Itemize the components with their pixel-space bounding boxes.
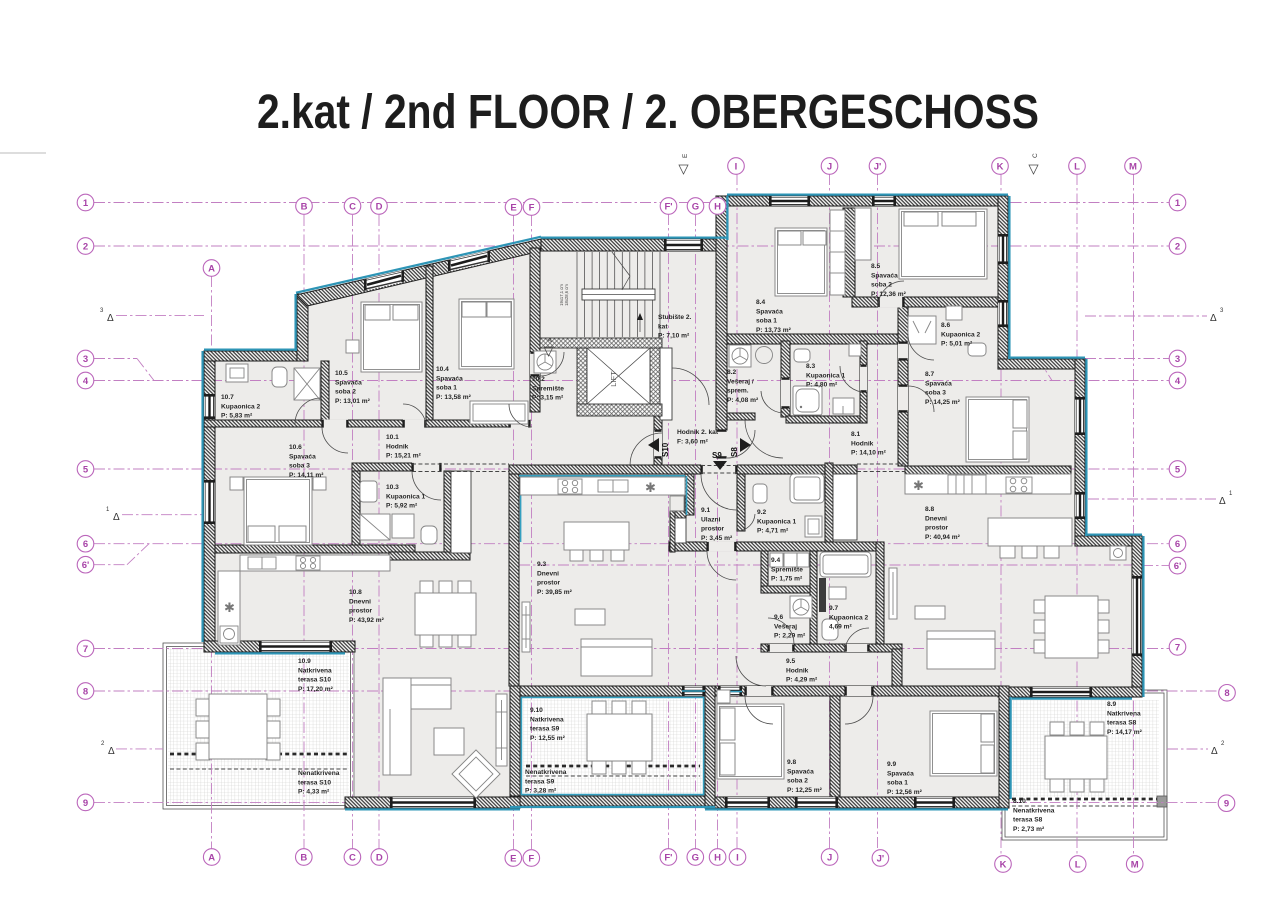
svg-text:J': J'	[877, 853, 885, 864]
svg-text:A: A	[208, 852, 215, 863]
svg-text:10.2: 10.2	[532, 376, 545, 383]
svg-text:soba 1: soba 1	[887, 780, 908, 787]
svg-text:terasa S10: terasa S10	[298, 677, 331, 684]
svg-text:Dnevni: Dnevni	[925, 515, 947, 522]
svg-text:Hodnik 2. kat: Hodnik 2. kat	[677, 429, 719, 436]
svg-text:L: L	[1074, 161, 1080, 172]
svg-text:P: 5,92 m²: P: 5,92 m²	[386, 503, 418, 510]
svg-text:soba 2: soba 2	[335, 389, 356, 396]
svg-text:8.6: 8.6	[941, 322, 950, 329]
svg-text:soba 2: soba 2	[871, 282, 892, 289]
svg-text:10.3: 10.3	[386, 484, 399, 491]
svg-text:terasa S8: terasa S8	[1107, 720, 1137, 727]
svg-text:2: 2	[1175, 241, 1180, 252]
svg-text:P: 12,36 m²: P: 12,36 m²	[871, 291, 907, 298]
svg-text:Kupaonica 2: Kupaonica 2	[829, 614, 869, 621]
svg-text:S9: S9	[712, 451, 722, 460]
svg-text:P: 17,20 m²: P: 17,20 m²	[298, 686, 334, 693]
svg-text:2: 2	[83, 241, 88, 252]
svg-text:L: L	[1075, 859, 1081, 870]
svg-text:terasa S9: terasa S9	[525, 778, 555, 785]
svg-text:Hodnik: Hodnik	[386, 443, 409, 450]
svg-text:LIFT: LIFT	[609, 371, 618, 387]
svg-text:J: J	[827, 852, 832, 863]
svg-text:10.4: 10.4	[436, 366, 449, 373]
svg-text:P: 12,56 m²: P: 12,56 m²	[887, 789, 923, 796]
svg-text:9: 9	[1224, 799, 1229, 810]
svg-text:8.8: 8.8	[925, 506, 934, 513]
svg-text:P: 4,29 m²: P: 4,29 m²	[786, 677, 818, 684]
svg-text:S8: S8	[730, 447, 739, 457]
svg-text:Spremište: Spremište	[771, 566, 803, 573]
svg-text:9.5: 9.5	[786, 658, 795, 665]
svg-text:P: 14,10 m²: P: 14,10 m²	[851, 450, 887, 457]
svg-text:H: H	[714, 201, 721, 212]
svg-text:C: C	[349, 201, 356, 212]
svg-text:✱: ✱	[913, 478, 924, 493]
svg-text:B: B	[301, 201, 308, 212]
svg-text:soba 1: soba 1	[756, 318, 777, 325]
svg-text:J: J	[827, 161, 832, 172]
svg-text:Δ: Δ	[1211, 746, 1218, 757]
svg-text:Hodnik: Hodnik	[851, 440, 874, 447]
svg-text:sprem.: sprem.	[727, 388, 749, 395]
svg-text:9.2: 9.2	[757, 509, 766, 516]
svg-text:8.5: 8.5	[871, 263, 880, 270]
svg-text:9: 9	[83, 798, 88, 809]
svg-text:Natkrivena: Natkrivena	[298, 667, 332, 674]
svg-text:P: 14,11 m²: P: 14,11 m²	[289, 472, 324, 479]
svg-text:P: 13,73 m²: P: 13,73 m²	[756, 327, 792, 334]
svg-text:Nenatkrivena: Nenatkrivena	[525, 769, 567, 776]
svg-text:P: 7,10 m²: P: 7,10 m²	[658, 333, 690, 340]
svg-text:I: I	[736, 852, 739, 863]
svg-text:10.9: 10.9	[298, 658, 311, 665]
svg-text:1: 1	[83, 198, 89, 209]
svg-text:8.10: 8.10	[1013, 798, 1026, 805]
svg-text:kat: kat	[658, 323, 668, 330]
svg-text:prostor: prostor	[349, 608, 373, 615]
svg-text:10.5: 10.5	[335, 370, 348, 377]
svg-text:E: E	[510, 853, 516, 864]
svg-text:I: I	[735, 161, 738, 172]
svg-text:Kupaonica 1: Kupaonica 1	[806, 372, 846, 379]
svg-text:P: 14,17 m²: P: 14,17 m²	[1107, 729, 1143, 736]
svg-text:Spavaća: Spavaća	[787, 768, 814, 775]
svg-text:prostor: prostor	[925, 525, 949, 532]
svg-text:Dnevni: Dnevni	[349, 598, 371, 605]
svg-text:Nenatkrivena: Nenatkrivena	[1013, 807, 1055, 814]
svg-text:M: M	[1129, 161, 1137, 172]
svg-text:P: 5,83 m²: P: 5,83 m²	[221, 413, 253, 420]
svg-text:P: 3,28 m²: P: 3,28 m²	[525, 788, 557, 795]
svg-text:9.3: 9.3	[537, 561, 546, 568]
svg-text:P: 4,33 m²: P: 4,33 m²	[298, 789, 330, 796]
svg-text:P: 2,29 m²: P: 2,29 m²	[774, 633, 806, 640]
svg-text:terasa S9: terasa S9	[530, 726, 560, 733]
svg-text:P: 3,15 m²: P: 3,15 m²	[532, 395, 564, 402]
svg-text:4,69 m²: 4,69 m²	[829, 624, 853, 631]
svg-text:B: B	[300, 852, 307, 863]
svg-text:Vešeraj /: Vešeraj /	[727, 378, 754, 385]
svg-text:terasa S10: terasa S10	[298, 779, 331, 786]
svg-text:terasa S8: terasa S8	[1013, 817, 1043, 824]
svg-text:9.8: 9.8	[787, 759, 796, 766]
svg-text:9.7: 9.7	[829, 605, 838, 612]
svg-text:K: K	[997, 161, 1004, 172]
svg-text:Spavaća: Spavaća	[887, 770, 914, 777]
svg-text:Hodnik: Hodnik	[786, 667, 809, 674]
svg-text:P: 43,92 m²: P: 43,92 m²	[349, 617, 385, 624]
svg-text:18x28,6 cm: 18x28,6 cm	[564, 284, 569, 306]
svg-text:1: 1	[1175, 198, 1181, 209]
svg-text:Natkrivena: Natkrivena	[530, 716, 564, 723]
svg-text:8.2: 8.2	[727, 369, 736, 376]
svg-text:10.6: 10.6	[289, 444, 302, 451]
svg-text:Spavaća: Spavaća	[289, 453, 316, 460]
svg-text:Δ: Δ	[107, 313, 114, 324]
svg-text:P: 1,75 m²: P: 1,75 m²	[771, 576, 803, 583]
svg-text:Kupaonica 2: Kupaonica 2	[941, 331, 981, 338]
svg-text:10.1: 10.1	[386, 434, 399, 441]
svg-text:P: 39,85 m²: P: 39,85 m²	[537, 589, 573, 596]
svg-text:9.9: 9.9	[887, 761, 896, 768]
svg-text:D: D	[376, 852, 383, 863]
svg-text:3: 3	[1175, 354, 1180, 365]
svg-text:5: 5	[1175, 464, 1181, 475]
svg-text:Δ: Δ	[1219, 496, 1226, 507]
svg-text:Δ: Δ	[113, 512, 120, 523]
svg-text:prostor: prostor	[701, 526, 725, 533]
svg-text:2.kat / 2nd FLOOR / 2. OBERGES: 2.kat / 2nd FLOOR / 2. OBERGESCHOSS	[257, 86, 1039, 139]
svg-text:M: M	[1131, 859, 1139, 870]
svg-text:P: 4,80 m²: P: 4,80 m²	[806, 382, 838, 389]
svg-text:8.3: 8.3	[806, 363, 815, 370]
svg-text:F: F	[528, 853, 534, 864]
svg-text:10.7: 10.7	[221, 394, 234, 401]
svg-text:C: C	[349, 852, 356, 863]
svg-text:soba 3: soba 3	[289, 463, 310, 470]
svg-text:P: 12,55 m²: P: 12,55 m²	[530, 735, 566, 742]
svg-text:Spavaća: Spavaća	[756, 308, 783, 315]
svg-text:9.4: 9.4	[771, 557, 780, 564]
svg-text:soba 1: soba 1	[436, 385, 457, 392]
svg-text:8.9: 8.9	[1107, 701, 1116, 708]
svg-text:Spavaća: Spavaća	[925, 380, 952, 387]
svg-text:J': J'	[874, 161, 882, 172]
svg-text:7: 7	[83, 644, 88, 655]
svg-text:P: 15,21 m²: P: 15,21 m²	[386, 453, 422, 460]
svg-text:8: 8	[83, 686, 88, 697]
svg-text:Vešeraj: Vešeraj	[774, 623, 797, 630]
svg-text:10.8: 10.8	[349, 589, 362, 596]
svg-text:Kupaonica 1: Kupaonica 1	[757, 518, 797, 525]
svg-text:Δ: Δ	[108, 746, 115, 757]
svg-text:4: 4	[1175, 376, 1181, 387]
svg-text:soba 3: soba 3	[925, 390, 946, 397]
svg-text:9.1: 9.1	[701, 507, 710, 514]
svg-text:Stubište 2.: Stubište 2.	[658, 314, 692, 321]
svg-text:Spavaća: Spavaća	[335, 379, 362, 386]
svg-text:3: 3	[83, 354, 88, 365]
svg-text:A: A	[208, 263, 215, 274]
svg-text:✱: ✱	[224, 600, 235, 615]
svg-text:Spavaća: Spavaća	[871, 272, 898, 279]
svg-text:P: 14,25 m²: P: 14,25 m²	[925, 399, 961, 406]
svg-text:prostor: prostor	[537, 580, 561, 587]
svg-text:5: 5	[83, 464, 89, 475]
svg-text:F: F	[529, 202, 535, 213]
svg-text:7: 7	[1175, 642, 1180, 653]
svg-text:9.10: 9.10	[530, 707, 543, 714]
svg-text:Ulazni: Ulazni	[701, 516, 721, 523]
svg-text:P: 5,01 m²: P: 5,01 m²	[941, 341, 973, 348]
svg-text:6: 6	[83, 539, 88, 550]
svg-text:6': 6'	[82, 560, 90, 571]
svg-text:P: 13,58 m²: P: 13,58 m²	[436, 394, 472, 401]
svg-text:8.4: 8.4	[756, 299, 765, 306]
svg-text:K: K	[1000, 859, 1007, 870]
svg-text:8.1: 8.1	[851, 431, 860, 438]
svg-text:F: 3,60 m²: F: 3,60 m²	[677, 438, 709, 445]
svg-text:A: A	[547, 337, 554, 342]
svg-text:8.7: 8.7	[925, 371, 934, 378]
svg-text:E: E	[510, 202, 516, 213]
svg-text:Natkrivena: Natkrivena	[1107, 710, 1141, 717]
svg-text:P: 12,25 m²: P: 12,25 m²	[787, 787, 823, 794]
svg-text:P: 4,08 m²: P: 4,08 m²	[727, 397, 759, 404]
svg-text:H: H	[714, 852, 721, 863]
svg-text:D: D	[376, 201, 383, 212]
svg-text:G: G	[692, 852, 699, 863]
svg-text:P: 40,94 m²: P: 40,94 m²	[925, 534, 961, 541]
svg-text:F': F'	[664, 201, 672, 212]
svg-text:4: 4	[83, 376, 89, 387]
svg-text:C: C	[1032, 153, 1039, 158]
svg-text:Δ: Δ	[1210, 313, 1217, 324]
svg-text:P: 3,45 m²: P: 3,45 m²	[701, 535, 733, 542]
svg-text:P: 2,73 m²: P: 2,73 m²	[1013, 826, 1045, 833]
svg-text:G: G	[692, 201, 699, 212]
svg-text:S10: S10	[661, 442, 670, 457]
svg-text:P: 4,71 m²: P: 4,71 m²	[757, 528, 789, 535]
svg-text:soba 2: soba 2	[787, 778, 808, 785]
svg-text:8: 8	[1224, 688, 1229, 699]
svg-text:✱: ✱	[645, 480, 656, 495]
svg-text:9.6: 9.6	[774, 614, 783, 621]
svg-text:Spremište: Spremište	[532, 385, 564, 392]
svg-text:Dnevni: Dnevni	[537, 570, 559, 577]
svg-text:6: 6	[1175, 539, 1180, 550]
svg-text:Spavaća: Spavaća	[436, 375, 463, 382]
svg-text:F': F'	[664, 852, 672, 863]
svg-text:6': 6'	[1174, 561, 1182, 572]
svg-text:Kupaonica 2: Kupaonica 2	[221, 403, 261, 410]
svg-text:E: E	[682, 153, 689, 158]
svg-text:P: 13,01 m²: P: 13,01 m²	[335, 398, 371, 405]
svg-text:Nenatkrivena: Nenatkrivena	[298, 770, 340, 777]
svg-text:Kupaonica 1: Kupaonica 1	[386, 493, 426, 500]
